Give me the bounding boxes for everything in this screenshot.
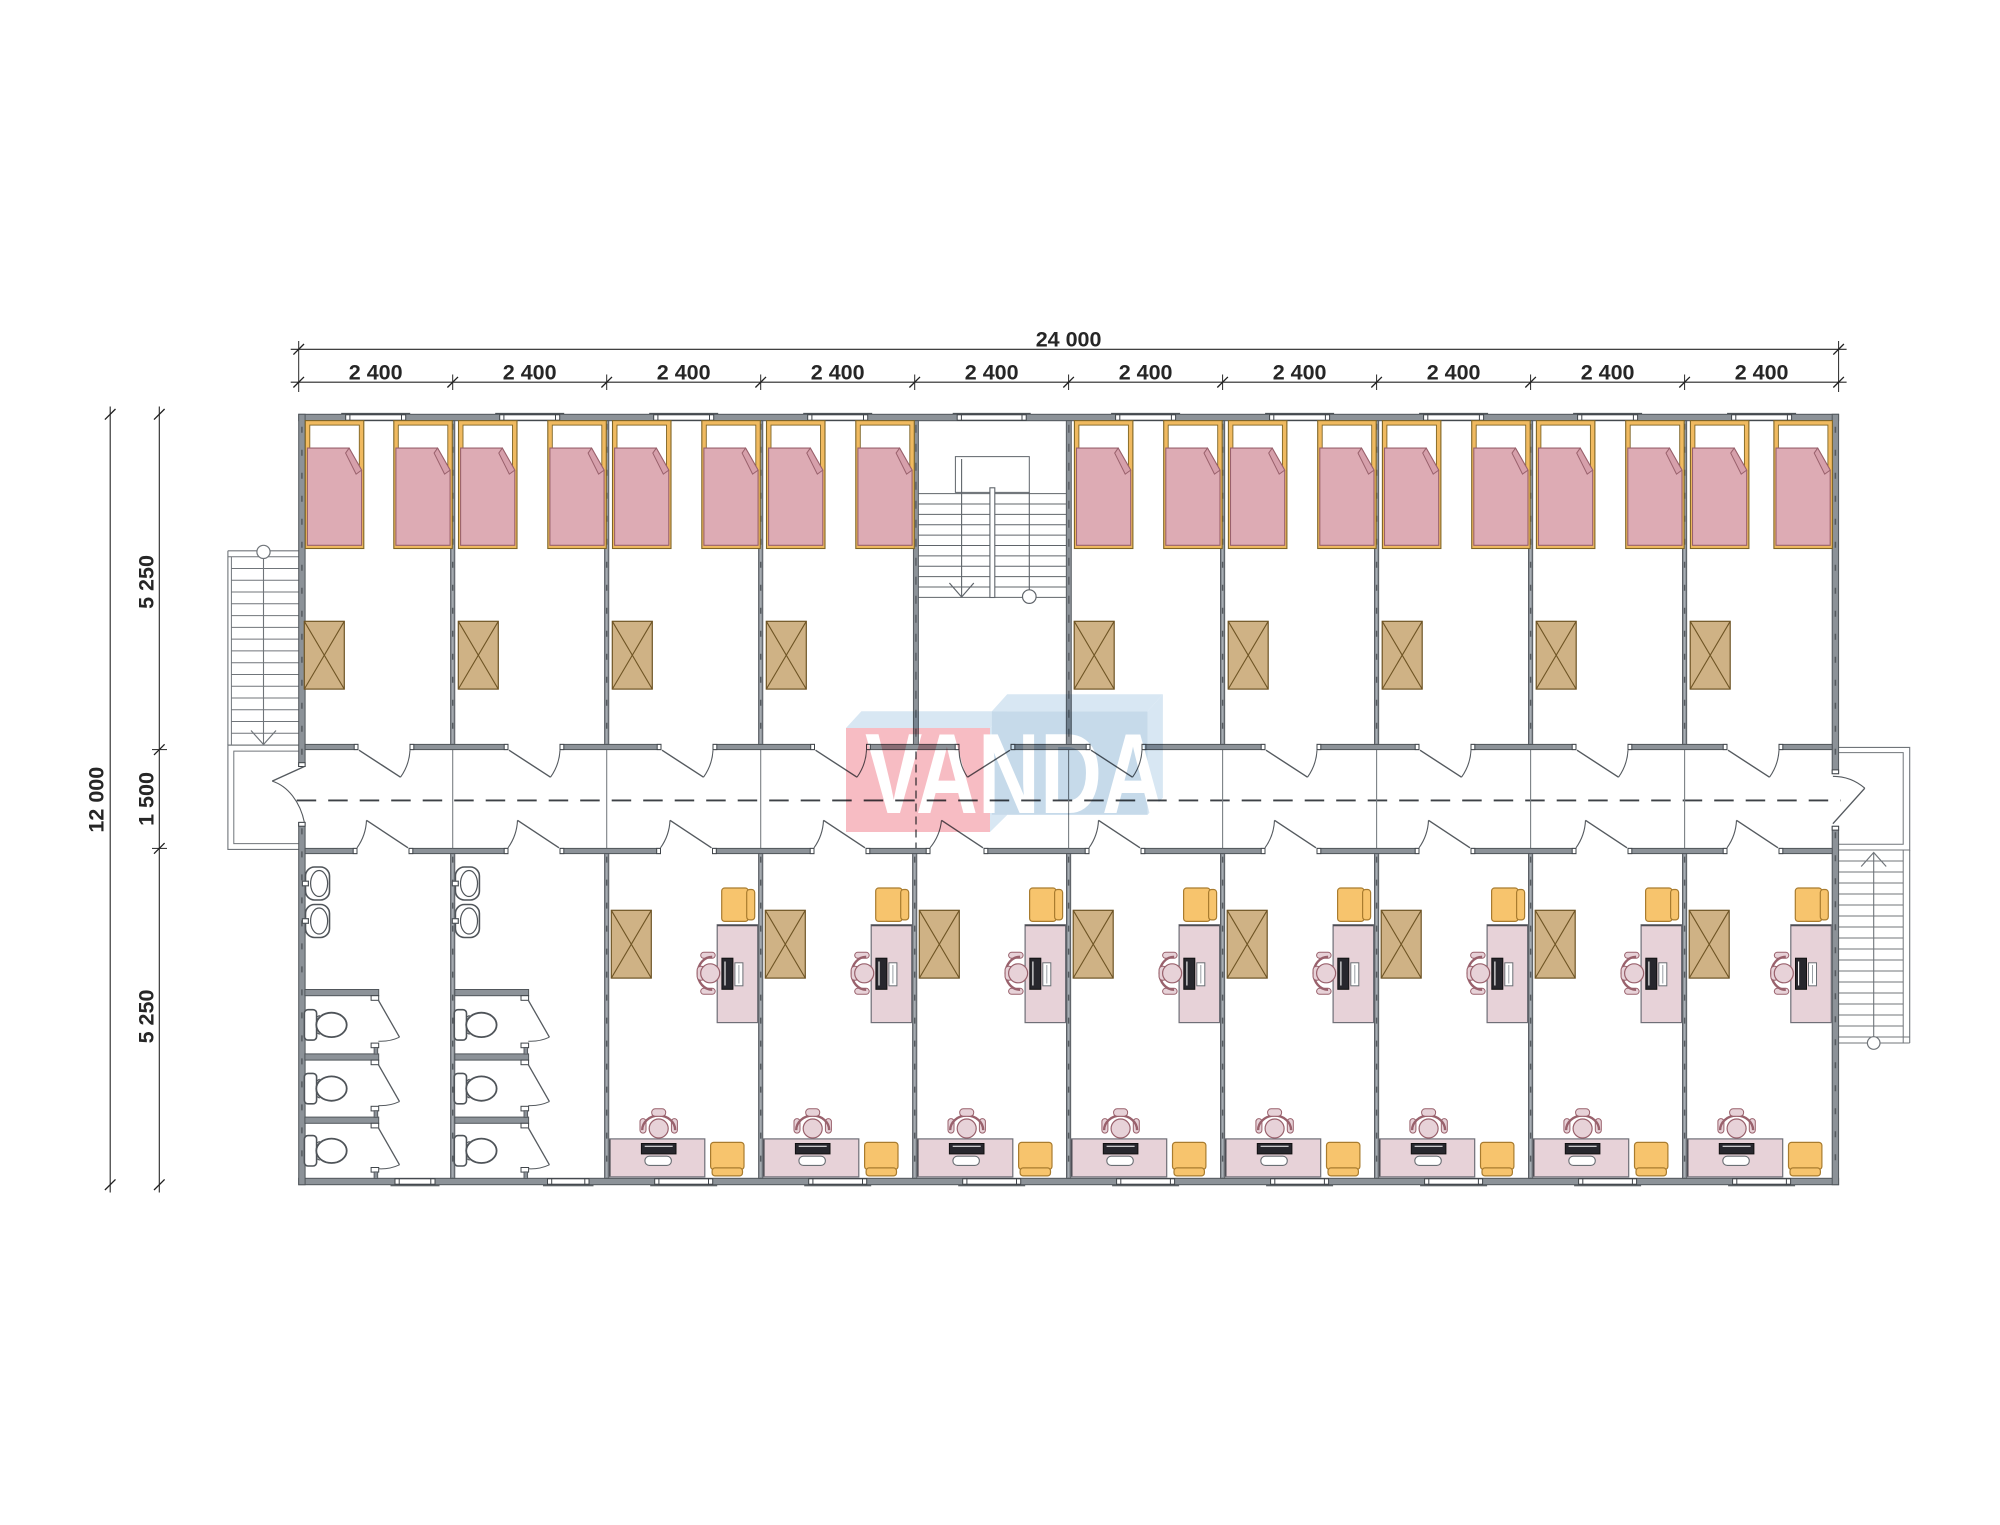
svg-text:2 400: 2 400 <box>503 360 557 384</box>
svg-text:2 400: 2 400 <box>1119 360 1173 384</box>
svg-text:2 400: 2 400 <box>1581 360 1635 384</box>
svg-text:2 400: 2 400 <box>657 360 711 384</box>
svg-text:2 400: 2 400 <box>349 360 403 384</box>
svg-text:5 250: 5 250 <box>135 990 159 1044</box>
svg-text:2 400: 2 400 <box>965 360 1019 384</box>
svg-text:2 400: 2 400 <box>811 360 865 384</box>
svg-text:5 250: 5 250 <box>135 555 159 609</box>
svg-text:24 000: 24 000 <box>1036 328 1102 352</box>
svg-text:2 400: 2 400 <box>1273 360 1327 384</box>
svg-text:2 400: 2 400 <box>1735 360 1789 384</box>
svg-text:1 500: 1 500 <box>135 772 159 826</box>
svg-text:12 000: 12 000 <box>85 767 109 833</box>
svg-text:2 400: 2 400 <box>1427 360 1481 384</box>
